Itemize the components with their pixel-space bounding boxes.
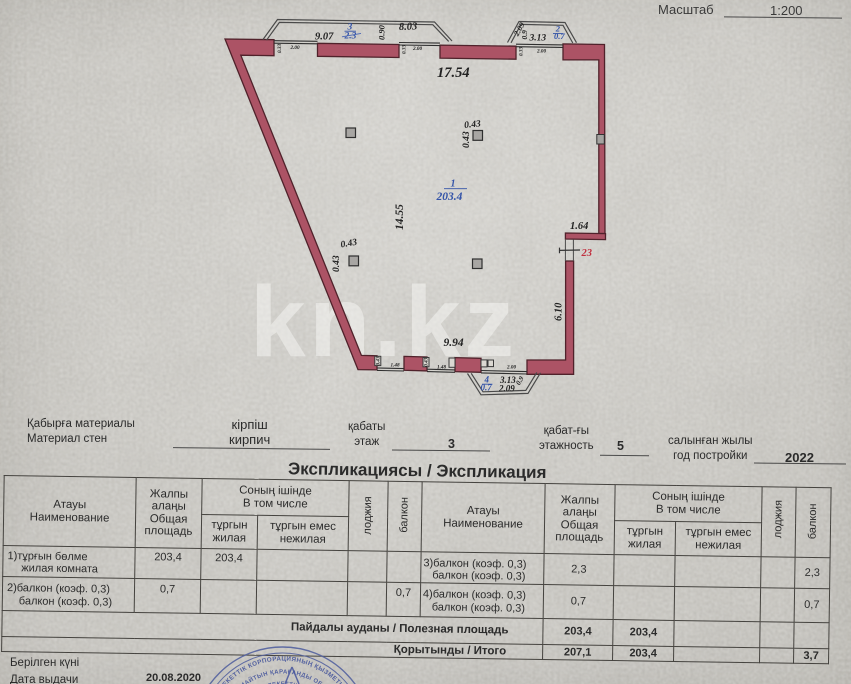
svg-text:МЕМЛЕКЕТТІК КОРПОРАЦИЯНЫҢ ҚЫЗМ: МЕМЛЕКЕТТІК КОРПОРАЦИЯНЫҢ ҚЫЗМЕТІ bbox=[209, 655, 343, 684]
svg-text:0.43: 0.43 bbox=[424, 357, 430, 366]
svg-text:0.43: 0.43 bbox=[462, 131, 472, 148]
svg-text:0.9: 0.9 bbox=[514, 374, 526, 386]
svg-text:2.09: 2.09 bbox=[498, 384, 515, 394]
svg-text:0.43: 0.43 bbox=[376, 356, 382, 365]
svg-text:1.64: 1.64 bbox=[570, 221, 588, 232]
svg-text:1.48: 1.48 bbox=[437, 365, 446, 371]
svg-text:2.00: 2.00 bbox=[412, 46, 422, 52]
svg-text:0.33: 0.33 bbox=[402, 45, 408, 54]
svg-text:0.33: 0.33 bbox=[277, 44, 283, 53]
svg-text:0.43: 0.43 bbox=[332, 255, 342, 272]
svg-text:2.00: 2.00 bbox=[506, 364, 516, 370]
svg-text:14.55: 14.55 bbox=[394, 204, 406, 230]
svg-text:17.54: 17.54 bbox=[437, 65, 470, 81]
svg-text:203.4: 203.4 bbox=[436, 191, 463, 203]
svg-text:6.10: 6.10 bbox=[554, 302, 565, 321]
svg-text:0.9: 0.9 bbox=[520, 30, 529, 40]
svg-text:1.48: 1.48 bbox=[391, 363, 400, 369]
svg-text:0.43: 0.43 bbox=[464, 119, 482, 131]
svg-text:1: 1 bbox=[451, 179, 456, 190]
svg-text:2.00: 2.00 bbox=[536, 49, 546, 55]
svg-text:0.7: 0.7 bbox=[554, 31, 565, 41]
svg-text:9.07: 9.07 bbox=[315, 32, 334, 43]
svg-text:23: 23 bbox=[581, 248, 593, 259]
svg-text:2.00: 2.00 bbox=[290, 45, 300, 51]
svg-text:9.94: 9.94 bbox=[444, 337, 464, 349]
svg-text:0.33: 0.33 bbox=[519, 47, 525, 56]
svg-text:8.03: 8.03 bbox=[399, 21, 418, 33]
svg-text:0.43: 0.43 bbox=[340, 238, 358, 251]
svg-text:0.90: 0.90 bbox=[377, 24, 387, 40]
svg-text:3.13: 3.13 bbox=[529, 34, 547, 44]
